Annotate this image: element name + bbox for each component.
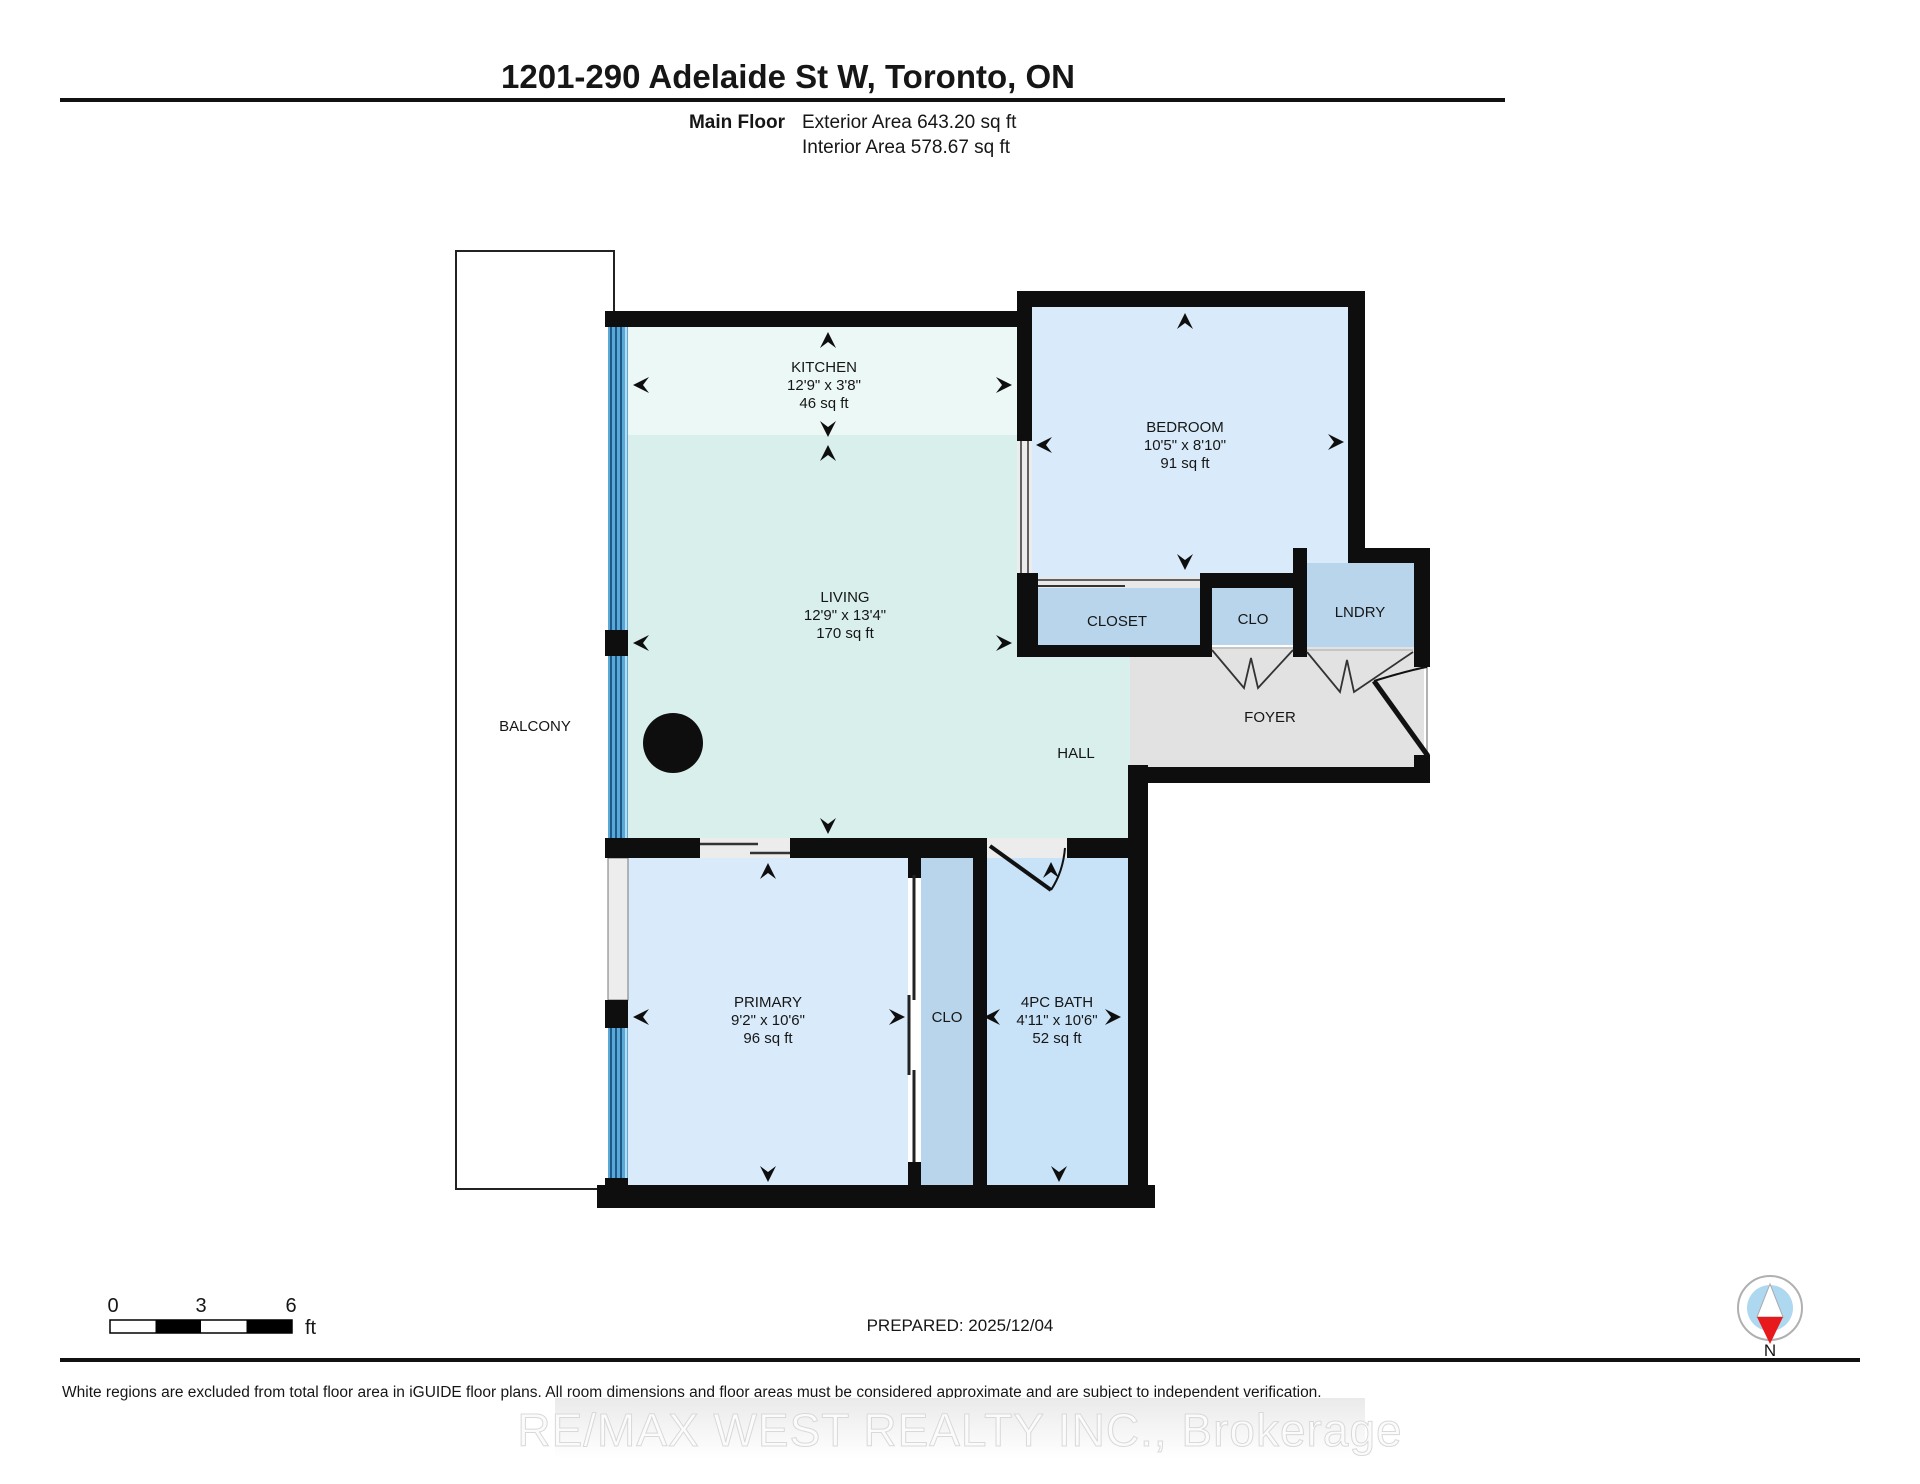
header: 1201-290 Adelaide St W, Toronto, ON Main…	[60, 58, 1505, 158]
wall-segment	[1017, 291, 1032, 441]
living-dims: 12'9" x 13'4"	[804, 607, 886, 624]
scale-bar: 0 3 6 ft	[107, 1295, 316, 1339]
window-bands	[608, 327, 628, 1178]
scale-bar-seg-black-2	[247, 1320, 293, 1333]
scale-tick-3: 3	[195, 1295, 206, 1317]
wall-segment	[973, 858, 987, 1185]
closet-label: CLOSET	[1087, 613, 1147, 630]
page-title: 1201-290 Adelaide St W, Toronto, ON	[501, 58, 1075, 95]
wall-segment	[1200, 573, 1307, 588]
bath-label: 4PC BATH	[1021, 994, 1093, 1011]
room-balcony: BALCONY	[456, 251, 614, 1189]
footer-divider	[60, 1358, 1860, 1362]
compass: N	[1738, 1276, 1802, 1360]
floor-plan-canvas: 1201-290 Adelaide St W, Toronto, ON Main…	[0, 0, 1920, 1484]
interior-area-label: Interior Area 578.67 sq ft	[802, 137, 1011, 158]
prepared-date: PREPARED: 2025/12/04	[867, 1316, 1054, 1335]
kitchen-area: 46 sq ft	[799, 395, 849, 412]
primary-door-opening	[700, 838, 790, 858]
floor-plan-page: 1201-290 Adelaide St W, Toronto, ON Main…	[0, 0, 1920, 1484]
wall-segment	[605, 311, 1032, 327]
wall-segment	[1067, 838, 1130, 858]
foyer-fill	[1130, 647, 1424, 767]
scale-tick-6: 6	[285, 1295, 296, 1317]
wall-segment	[1414, 755, 1430, 783]
clo-hall-label: CLO	[1238, 611, 1269, 628]
wall-segment	[597, 1185, 1155, 1208]
living-area: 170 sq ft	[816, 625, 874, 642]
floor-label: Main Floor	[689, 112, 786, 133]
wall-segment	[605, 630, 628, 656]
bedroom-area: 91 sq ft	[1160, 455, 1210, 472]
bath-dims: 4'11" x 10'6"	[1016, 1012, 1097, 1029]
primary-label: PRIMARY	[734, 994, 802, 1011]
scale-unit: ft	[305, 1317, 317, 1339]
bath-door-opening	[987, 838, 1067, 858]
bedroom-dims: 10'5" x 8'10"	[1144, 437, 1226, 454]
wall-segment	[1293, 548, 1307, 657]
primary-left-wall-band	[608, 858, 628, 1000]
wall-segment	[1414, 548, 1430, 667]
kitchen-label: KITCHEN	[791, 359, 857, 376]
wall-segment	[605, 1000, 628, 1028]
wall-segment	[605, 1178, 628, 1208]
scale-tick-0: 0	[107, 1295, 118, 1317]
wall-segment	[1200, 573, 1212, 657]
primary-area: 96 sq ft	[743, 1030, 793, 1047]
wall-segment	[1128, 765, 1148, 1208]
scale-bar-seg-black-1	[156, 1320, 202, 1333]
balcony-label: BALCONY	[499, 718, 571, 735]
foyer-label: FOYER	[1244, 709, 1296, 726]
wall-segment	[1148, 767, 1430, 783]
living-label: LIVING	[820, 589, 869, 606]
clo-primary-label: CLO	[932, 1009, 963, 1026]
wall-segment	[1017, 573, 1038, 657]
wall-segment	[1017, 291, 1365, 307]
lndry-label: LNDRY	[1335, 604, 1386, 621]
primary-dims: 9'2" x 10'6"	[731, 1012, 805, 1029]
wall-segment	[605, 838, 700, 858]
wall-segment	[790, 838, 987, 858]
exterior-area-label: Exterior Area 643.20 sq ft	[802, 112, 1017, 133]
wall-segment	[908, 1162, 921, 1185]
kitchen-dims: 12'9" x 3'8"	[787, 377, 861, 394]
brokerage-watermark: RE/MAX WEST REALTY INC., Brokerage	[517, 1404, 1402, 1456]
hall-label: HALL	[1057, 745, 1095, 762]
bedroom-label: BEDROOM	[1146, 419, 1224, 436]
title-divider	[60, 98, 1505, 102]
column	[643, 713, 703, 773]
bedroom-door-opening	[1017, 441, 1032, 573]
bath-area: 52 sq ft	[1032, 1030, 1082, 1047]
wall-segment	[1348, 291, 1365, 563]
compass-north-label: N	[1764, 1341, 1776, 1360]
wall-segment	[1017, 645, 1212, 657]
